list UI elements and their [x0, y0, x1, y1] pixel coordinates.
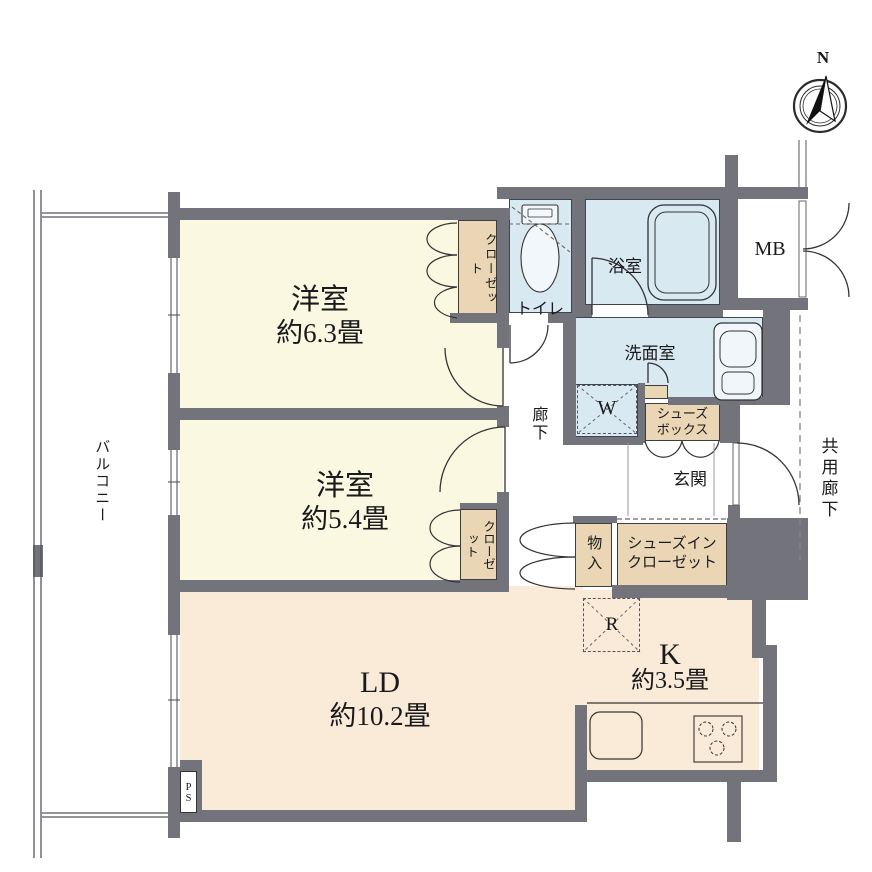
- door-meter-box: [799, 201, 849, 297]
- wall: [460, 503, 497, 509]
- storage-box-label: 物入: [584, 529, 601, 581]
- wall: [573, 516, 617, 523]
- wall: [763, 652, 777, 782]
- wall: [572, 199, 585, 317]
- wall: [168, 580, 509, 592]
- room-kitchen-size: 約3.5畳: [608, 668, 732, 696]
- closet-2-label: クローゼット: [462, 516, 496, 574]
- room-living-label: LD: [290, 666, 470, 701]
- washer-space-label: W: [592, 397, 622, 420]
- wall: [725, 155, 738, 199]
- room-bedroom-1-size: 約6.3畳: [230, 318, 410, 349]
- wall: [738, 187, 808, 199]
- wall: [728, 505, 740, 518]
- wall: [563, 437, 643, 445]
- wall: [763, 310, 790, 405]
- wall: [450, 313, 508, 323]
- room-bedroom-2-label: 洋室: [255, 470, 435, 503]
- wall: [575, 705, 587, 822]
- room-washroom-label: 洗面室: [618, 344, 682, 364]
- wall: [563, 317, 576, 443]
- shoes-box-label: シューズ ボックス: [645, 406, 720, 437]
- balcony-divider-block: [33, 545, 43, 577]
- wall: [497, 187, 738, 199]
- shoes-box-doors: [645, 441, 719, 457]
- room-toilet-label: トイレ: [512, 301, 568, 319]
- window: [168, 635, 180, 767]
- room-entrance-label: 玄関: [662, 470, 718, 490]
- common-corridor-label: 共用廊下: [818, 424, 838, 534]
- room-bath-floor: [585, 199, 720, 305]
- wall: [720, 397, 740, 443]
- door-toilet: [510, 325, 548, 363]
- wall: [727, 518, 808, 600]
- room-bedroom-1-label: 洋室: [230, 284, 410, 317]
- wall: [612, 585, 727, 598]
- shoes-in-closet-label: シューズイン クローゼット: [617, 535, 727, 573]
- balcony-label: バルコニー: [92, 436, 109, 526]
- wall: [638, 383, 645, 443]
- north-label: N: [810, 48, 836, 68]
- closet-1-label: クローゼット: [468, 226, 497, 312]
- room-bath-label: 浴室: [596, 257, 654, 277]
- wall: [168, 208, 510, 220]
- window: [168, 258, 180, 373]
- washroom-threshold: [643, 385, 668, 399]
- floor-plan: 洋室 約6.3畳 洋室 約5.4畳 LD 約10.2畳 K 約3.5畳 浴室 洗…: [0, 0, 872, 872]
- wall: [168, 810, 587, 822]
- north-compass-icon: [794, 76, 846, 132]
- fridge-space-label: R: [599, 614, 625, 636]
- door-entry: [733, 443, 799, 505]
- wall: [648, 305, 723, 317]
- room-living-size: 約10.2畳: [280, 701, 480, 732]
- wall: [572, 305, 592, 317]
- wall: [577, 770, 777, 782]
- room-toilet-floor: [509, 199, 572, 313]
- wall: [497, 492, 509, 592]
- window: [168, 450, 180, 515]
- room-bedroom-2-size: 約5.4畳: [255, 504, 435, 535]
- meter-box-label: MB: [750, 238, 790, 261]
- pipe-space-label: PS: [182, 775, 194, 811]
- room-hallway-label: 廊下: [528, 402, 546, 446]
- wall: [497, 208, 509, 348]
- wall: [720, 199, 738, 310]
- wall: [727, 782, 741, 842]
- wall: [168, 408, 509, 420]
- folding-door-storage: [520, 523, 575, 589]
- corridor-upper-lines: [799, 140, 806, 187]
